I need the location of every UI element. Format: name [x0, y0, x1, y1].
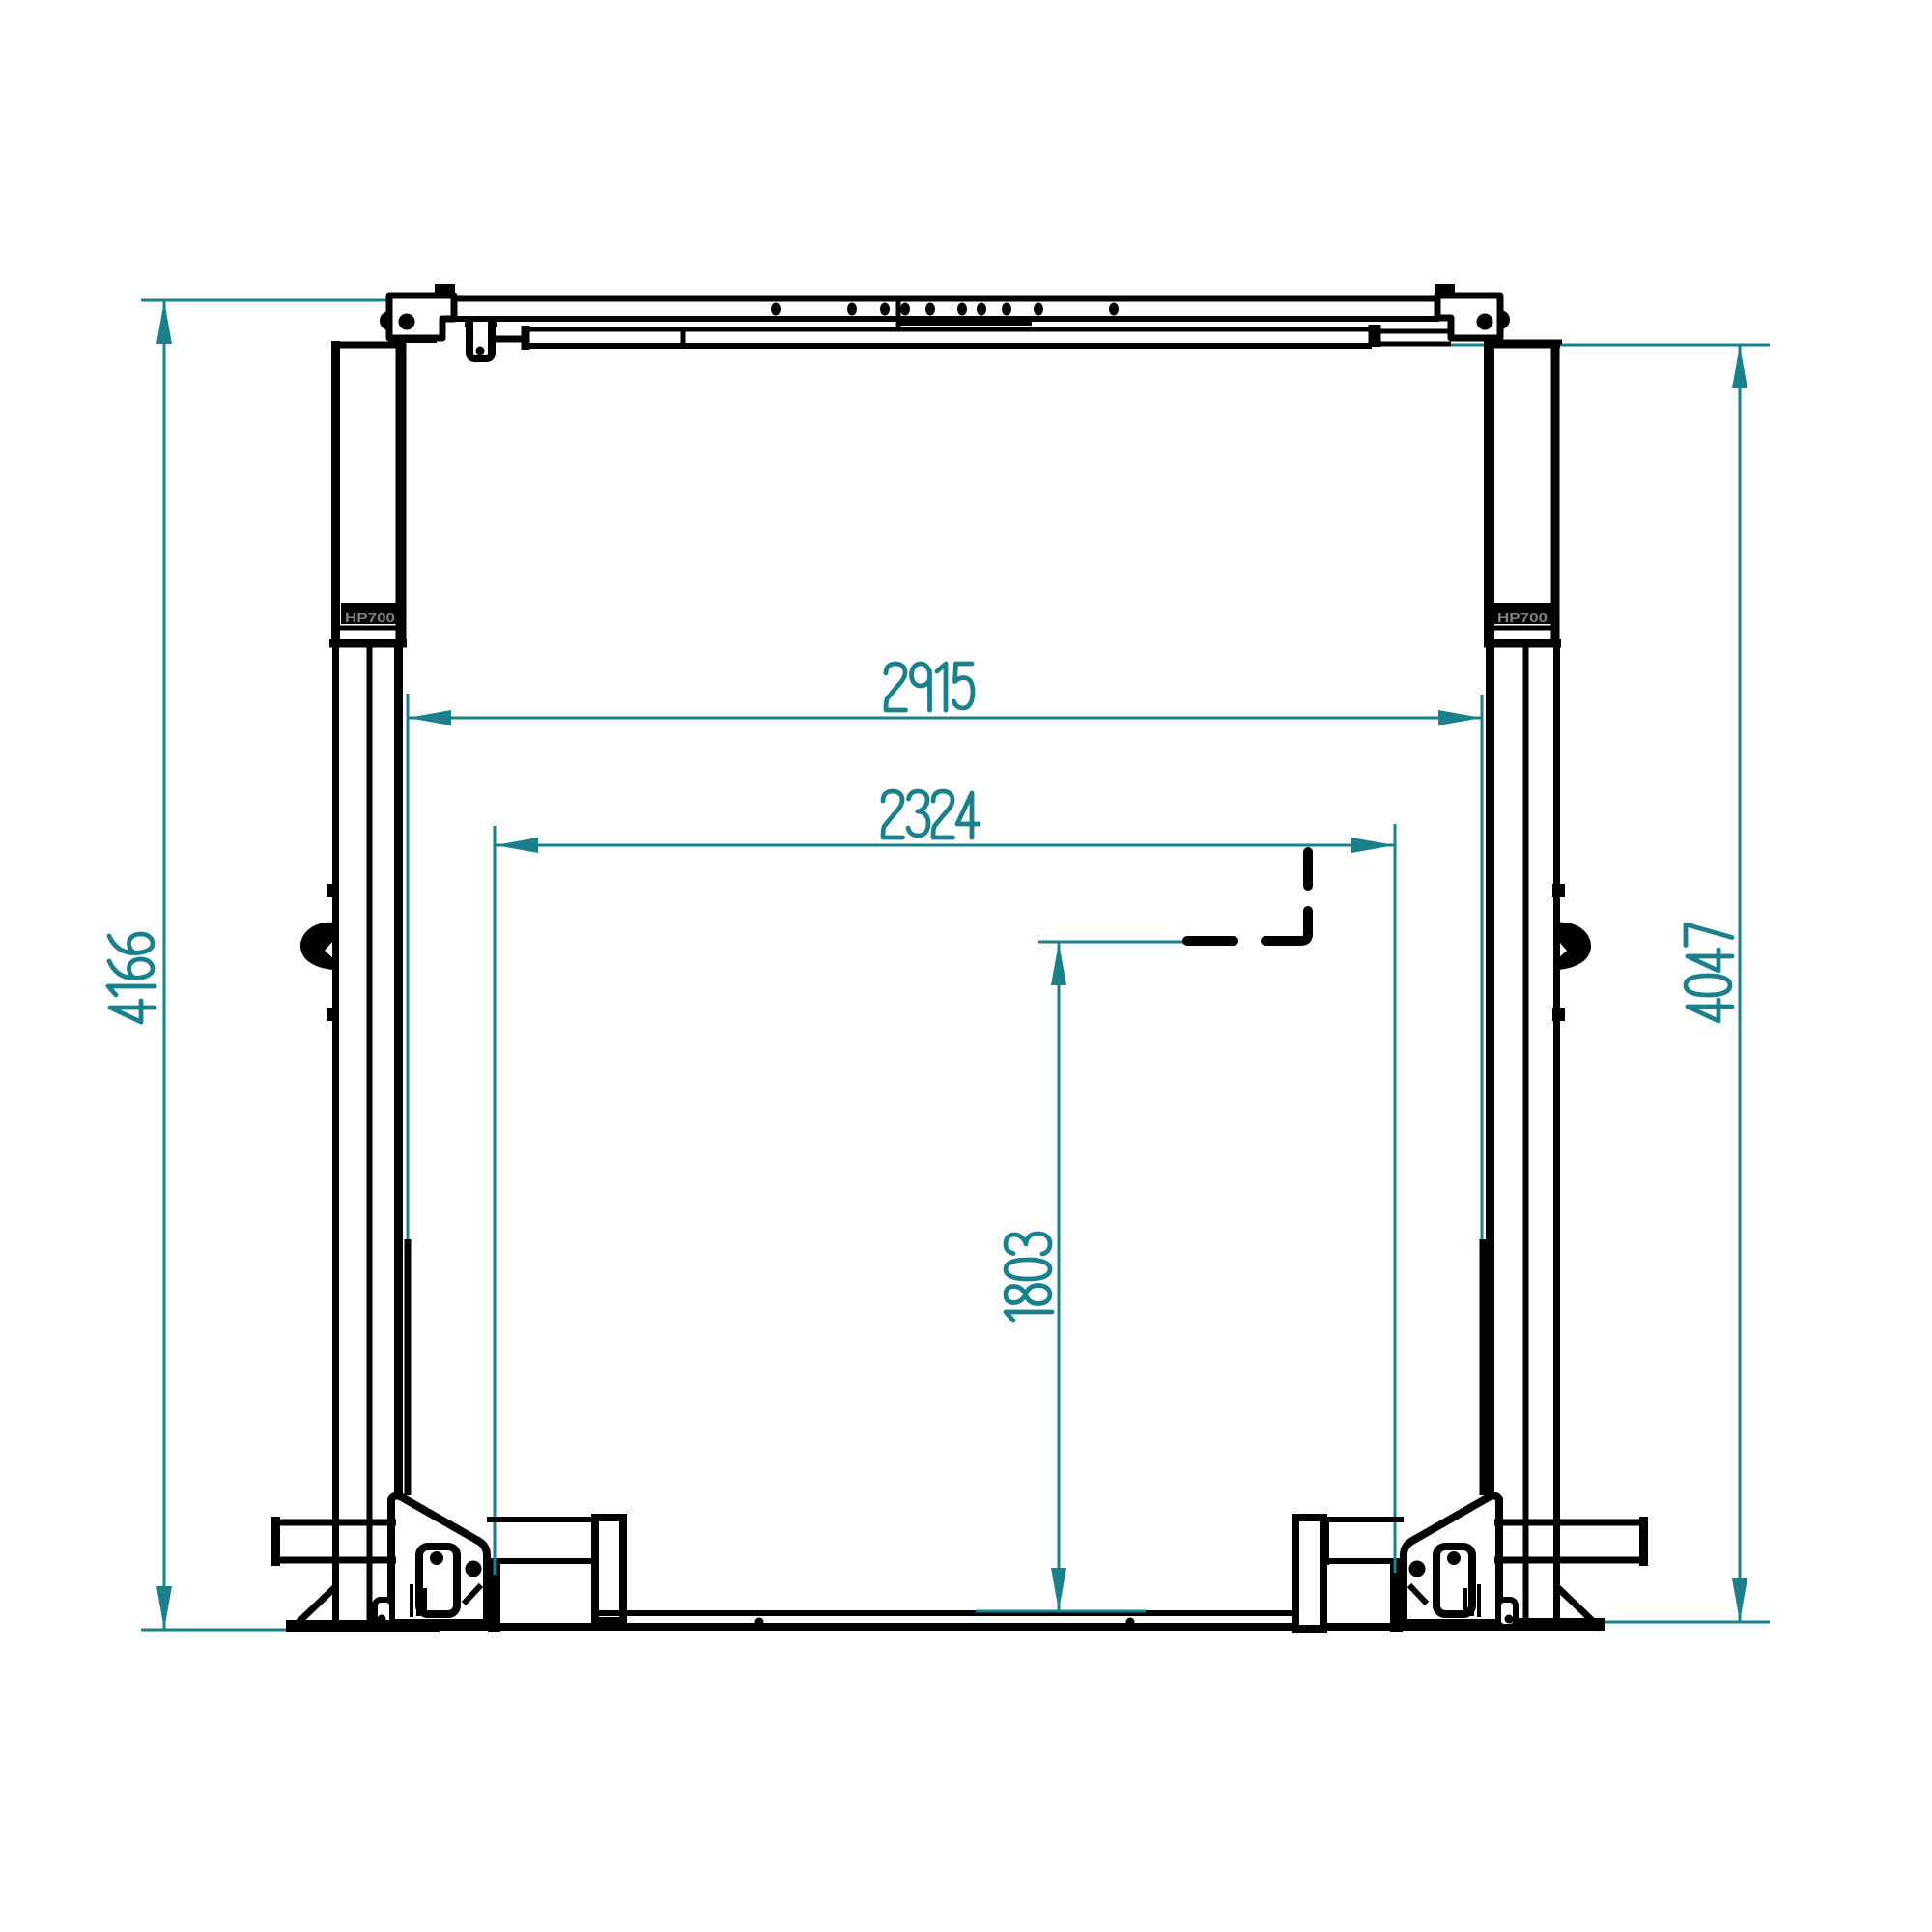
svg-text:HP700: HP700 [1497, 611, 1548, 625]
svg-text:HP700: HP700 [345, 611, 395, 625]
